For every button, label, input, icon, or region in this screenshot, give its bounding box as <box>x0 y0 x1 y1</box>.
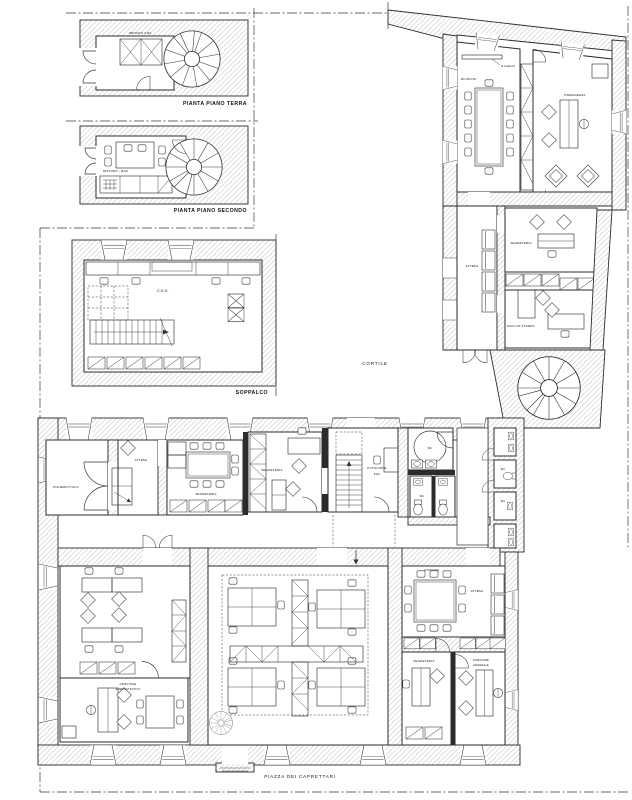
wing-top-wall <box>388 10 626 52</box>
architectural-plan-page: IMPIANTI CDZ PIANTA PIANO TERRA RISTORO … <box>0 0 632 800</box>
room-label-wc-stalls: WC <box>420 494 425 498</box>
right-wing: armadietto RIUNIONI PRESIDENZA ATTESA SE… <box>388 10 626 431</box>
room-label-segreteria-bottom: SEGRETERIA <box>413 659 434 663</box>
room-label-ufficio-stampa: UFFICIO STAMPA <box>507 324 535 328</box>
corridor-south-wall <box>58 548 500 566</box>
mini-plan-soppalco: C.E.D. SOPPALCO <box>72 240 276 396</box>
room-label-ced: C.E.D. <box>157 289 169 293</box>
room-central-office <box>208 566 388 745</box>
room-label-fax: FAX <box>374 472 380 476</box>
wing-shelf-band <box>506 274 595 290</box>
label-armadietto: armadietto <box>501 64 516 68</box>
cabinet-x <box>228 294 244 308</box>
caption-soppalco: SOPPALCO <box>236 390 268 396</box>
room-label-direzione-1: DIREZIONE <box>473 658 489 662</box>
mini-plan-piano-terra: IMPIANTI CDZ PIANTA PIANO TERRA <box>76 20 248 107</box>
room-label-impianti: IMPIANTI CDZ <box>129 31 151 35</box>
room-label-wc-large: WC <box>428 446 433 450</box>
room-presidenza <box>533 50 612 192</box>
room-label-presidenza: PRESIDENZA <box>564 93 585 97</box>
room-label-direzione-2: GENERALE <box>473 663 489 667</box>
room-label-wc-right1: WC <box>501 467 506 471</box>
main-block: PIANEROTTOLO ATTESA SEGRETERIA <box>38 418 524 773</box>
caption-piano-terra: PIANTA PIANO TERRA <box>183 101 247 107</box>
room-pianerottolo <box>46 440 108 515</box>
main-right-wall <box>505 552 518 745</box>
room-open-office <box>60 566 190 678</box>
door-gap <box>76 146 97 176</box>
room-label-direttore-2: AMMINISTRATIVO <box>116 687 141 691</box>
room-label-fotocopie: FOTOCOPIE <box>367 466 386 470</box>
room-label-riunioni-bottom: RIUNIONI <box>424 568 439 572</box>
door-gap <box>76 48 97 86</box>
room-label-segreteria-wing: SEGRETERIA <box>510 241 531 245</box>
room-label-pianerottolo: PIANEROTTOLO <box>53 485 79 489</box>
cabinet-x <box>228 308 244 322</box>
label-cortile: CORTILE <box>362 361 387 366</box>
riunioni-divider-shelf <box>521 64 533 190</box>
floor-plan-drawing: IMPIANTI CDZ PIANTA PIANO TERRA RISTORO … <box>0 0 632 800</box>
label-piazza: PIAZZA DEI CAPRETTARI <box>264 774 336 779</box>
spiral-stair-small <box>209 711 232 734</box>
room-label-ristoro: RISTORO - BAR <box>103 169 129 173</box>
wing-left-wall <box>443 34 457 206</box>
room-label-segreteria-office: SEGRETERIA <box>261 468 282 472</box>
room-label-segreteria-meeting: SEGRETERIA <box>195 492 216 496</box>
room-label-attesa-wing: ATTESA <box>466 264 479 268</box>
room-label-wc-right2: WC <box>501 499 506 503</box>
room-label-attesa-entry: ATTESA <box>135 458 148 462</box>
room-label-direttore-1: DIRETTORE <box>120 682 137 686</box>
room-label-riunioni-top: RIUNIONI <box>461 77 476 81</box>
mini-plan-piano-secondo: RISTORO - BAR PIANTA PIANO SECONDO <box>76 126 248 214</box>
room-label-attesa-bottom: ATTESA <box>471 589 484 593</box>
caption-piano-secondo: PIANTA PIANO SECONDO <box>174 208 247 214</box>
room-segreteria-wing <box>505 208 597 272</box>
